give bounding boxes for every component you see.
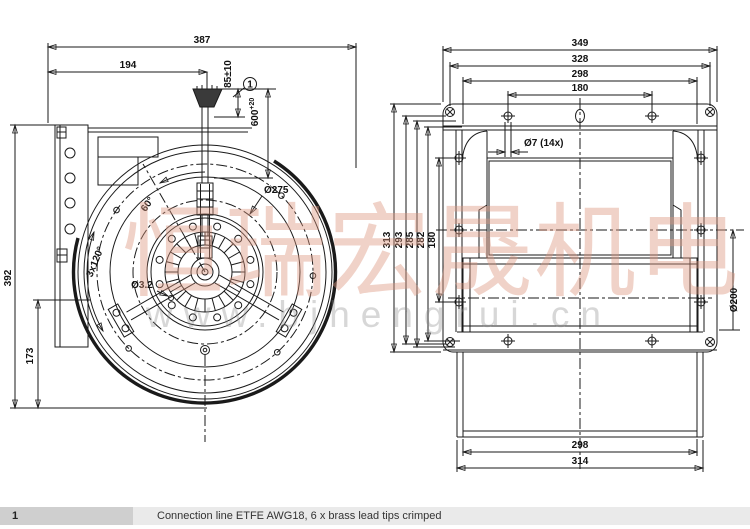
dia-3-2-label: Ø3.2: [131, 280, 153, 291]
connection-lead: [193, 85, 222, 258]
dim-387-label: 387: [194, 35, 211, 46]
dim-173-label: 173: [25, 347, 36, 364]
technical-drawing: 387 194 85±10 1 600+20 392 173 Ø275 Ø3.2: [0, 0, 750, 500]
note-index: 1: [0, 507, 133, 525]
dia-200-label: Ø200: [729, 287, 740, 312]
housing-holes: [114, 193, 316, 355]
dim-392-label: 392: [3, 269, 14, 286]
dim-180-left-label: 180: [427, 231, 438, 248]
dia-275-label: Ø275: [264, 185, 289, 196]
dim-600-label: 600+20: [249, 98, 261, 127]
blower-technical-drawing-page: 387 194 85±10 1 600+20 392 173 Ø275 Ø3.2: [0, 0, 750, 529]
crimped-lead-tips: [193, 89, 222, 107]
note-text: Connection line ETFE AWG18, 6 x brass le…: [157, 510, 442, 522]
dim-85-label: 85±10: [223, 60, 234, 88]
angle-60-label: 60°: [139, 195, 157, 214]
spider-pad-left: [108, 304, 134, 337]
dim-349-label: 349: [572, 38, 589, 49]
corner-bolt-bl: [446, 338, 455, 347]
spider-pad-right: [276, 304, 302, 337]
dim-282-label: 282: [416, 231, 427, 248]
corner-bolt-br: [706, 338, 715, 347]
corner-bolt-tr: [706, 108, 715, 117]
dim-298-top-label: 298: [572, 69, 589, 80]
side-view: 349 328 298 180 Ø7 (14x) 313 293 285: [382, 38, 744, 472]
callout-1-label: 1: [247, 80, 253, 91]
motor-hub: [108, 184, 302, 355]
note-bar: 1 Connection line ETFE AWG18, 6 x brass …: [0, 507, 750, 525]
dim-313-label: 313: [382, 231, 393, 248]
dim-194-label: 194: [120, 60, 137, 71]
dim-285-label: 285: [405, 231, 416, 248]
nameplate-label-2: [98, 157, 138, 185]
dim-180-top-label: 180: [572, 83, 589, 94]
corner-bolt-tl: [446, 108, 455, 117]
scroll-housing: [73, 128, 335, 442]
dim-314-label: 314: [572, 456, 589, 467]
nameplate-label: [98, 137, 158, 157]
dim-328-label: 328: [572, 54, 589, 65]
spider-arm-right: [215, 275, 284, 320]
top-hole-right: [645, 109, 659, 123]
top-hole-left: [501, 109, 515, 123]
dim-293-label: 293: [394, 231, 405, 248]
hole-note-label: Ø7 (14x): [524, 138, 563, 149]
front-view: 387 194 85±10 1 600+20 392 173 Ø275 Ø3.2: [3, 35, 356, 442]
dim-298-bottom-label: 298: [572, 440, 589, 451]
